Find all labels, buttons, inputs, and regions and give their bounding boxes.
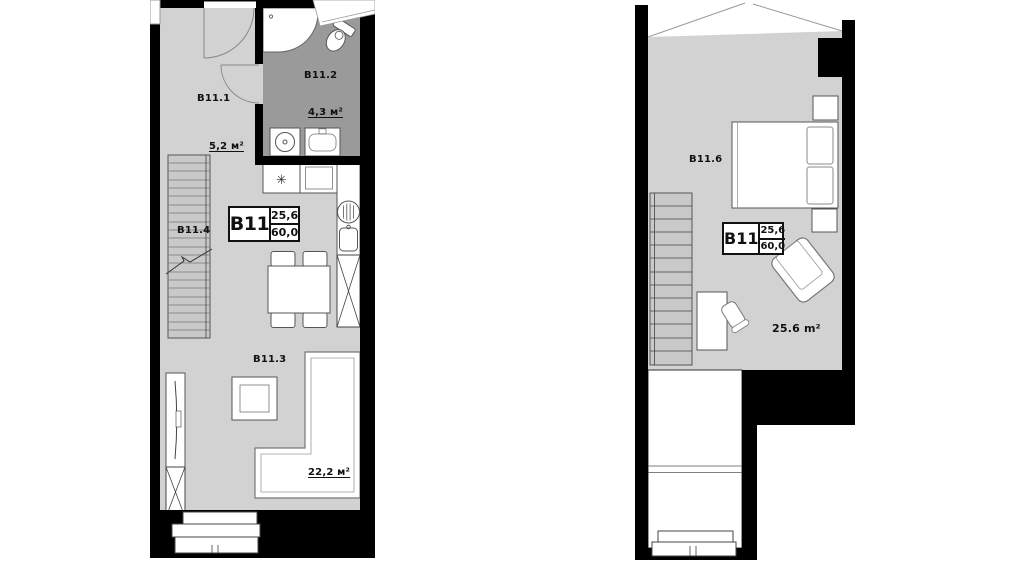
dining-chair <box>271 252 295 267</box>
fridge: ✳ <box>263 163 300 193</box>
unit-room-area-value: 25,6 <box>271 208 298 225</box>
bathroom-door-opening <box>255 64 263 104</box>
hall-area-label: 5,2 м² <box>209 141 244 153</box>
wall-left <box>150 24 160 510</box>
wall-bath-bottom <box>255 156 360 165</box>
terrace-steps <box>652 531 736 556</box>
floor-2-plan <box>635 0 855 560</box>
dining-chair <box>303 313 327 328</box>
wall-right <box>842 20 855 425</box>
bath-room-id-label: B11.2 <box>304 70 337 82</box>
dining-table <box>268 266 330 313</box>
staircase <box>650 193 692 365</box>
unit-total-area-value: 60,0 <box>760 240 785 254</box>
tv-bracket <box>176 411 181 427</box>
staircase <box>166 155 212 338</box>
unit-info-box-floor1: B11 25,6 60,0 <box>228 206 300 242</box>
kitchen-sink-bowl <box>338 201 360 223</box>
tall-cabinet <box>337 255 360 327</box>
tv-stand <box>166 373 185 467</box>
wall-left <box>635 5 648 548</box>
stairs-room-id-label: B11.4 <box>177 225 210 237</box>
floorplan-canvas: ✳ <box>0 0 1011 570</box>
stove <box>300 163 338 193</box>
desk <box>697 292 727 350</box>
pillow <box>807 167 833 204</box>
kitchen-counter <box>337 163 360 255</box>
entrance-opening <box>204 2 256 9</box>
washing-machine <box>270 128 300 156</box>
unit-total-area-value: 60,0 <box>271 225 298 240</box>
bath-area-label: 4,3 м² <box>308 107 343 119</box>
living-area-label: 22,2 м² <box>308 467 350 479</box>
kitchen-sink-basin <box>340 228 358 251</box>
nightstand <box>813 96 838 120</box>
dining-chair <box>271 313 295 328</box>
wall-block <box>742 370 842 425</box>
living-room-id-label: B11.3 <box>253 354 286 366</box>
dining-chair <box>303 252 327 267</box>
bedroom-id-label: B11.6 <box>689 154 722 166</box>
hall-room-id-label: B11.1 <box>197 93 230 105</box>
fridge-snowflake-icon: ✳ <box>276 173 287 188</box>
unit-id: B11 <box>230 208 271 240</box>
entrance-steps <box>172 512 260 553</box>
chimney-block <box>818 38 842 77</box>
unit-room-area-value: 25,6 <box>760 224 785 240</box>
nightstand <box>812 209 837 232</box>
unit-id: B11 <box>724 224 760 253</box>
wall-notch <box>150 0 160 24</box>
pillow <box>807 127 833 164</box>
void-opening <box>648 370 742 548</box>
wall-inner <box>742 425 757 548</box>
unit-info-box-floor2: B11 25,6 60,0 <box>722 222 784 255</box>
stair-flight <box>168 155 210 338</box>
wall-right <box>360 0 375 510</box>
coffee-table <box>232 377 277 420</box>
bedroom-area-label: 25.6 m² <box>772 323 821 335</box>
bathroom-sink <box>305 128 340 156</box>
